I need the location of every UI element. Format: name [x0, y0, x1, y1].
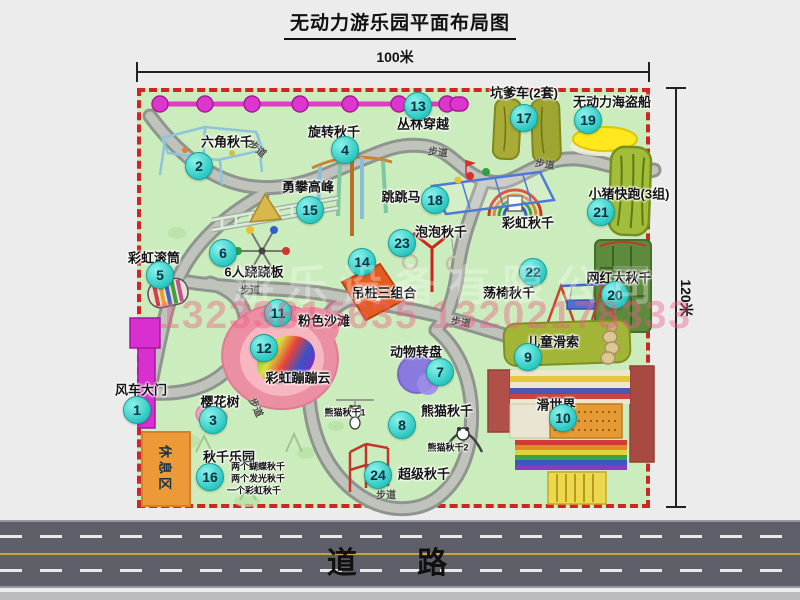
- badge-9: 9: [514, 343, 542, 371]
- park-plan-screenshot: 无动力游乐园平面布局图 100米 120米: [0, 0, 800, 600]
- badge-6: 6: [209, 239, 237, 267]
- badge-18: 18: [421, 186, 449, 214]
- height-dimension-tick-top: [666, 87, 686, 89]
- label-seesaw: 6人跷跷板: [224, 262, 283, 281]
- label-animal-turntable: 动物转盘: [390, 342, 442, 361]
- label-hanging-piles: 吊桩三组合: [351, 283, 416, 302]
- badge-16: 16: [196, 463, 224, 491]
- label-panda-swing-2: 熊猫秋千2: [427, 441, 468, 454]
- badge-15: 15: [296, 196, 324, 224]
- badge-11: 11: [264, 299, 292, 327]
- height-dimension-tick-bottom: [666, 506, 686, 508]
- badge-1: 1: [123, 396, 151, 424]
- road-label: 道 路: [0, 538, 800, 582]
- label-rainbow-cloud: 彩虹蹦蹦云: [265, 368, 330, 387]
- rest-area-label: 休息区: [157, 445, 176, 493]
- label-chair-swing: 荡椅秋千: [483, 283, 535, 302]
- label-pink-beach: 粉色沙滩: [298, 311, 350, 330]
- footpath-label: 步道: [427, 142, 448, 159]
- badge-7: 7: [426, 358, 454, 386]
- badge-4: 4: [331, 136, 359, 164]
- badge-21: 21: [587, 198, 615, 226]
- label-climbing-peak: 勇攀高峰: [282, 177, 334, 196]
- badge-5: 5: [146, 261, 174, 289]
- width-dimension-tick-right: [648, 62, 650, 82]
- width-dimension-tick-left: [136, 62, 138, 82]
- badge-19: 19: [574, 106, 602, 134]
- width-dimension-line: [137, 71, 650, 73]
- badge-17: 17: [510, 104, 538, 132]
- label-panda-swing-1: 熊猫秋千1: [324, 406, 365, 419]
- badge-23: 23: [388, 229, 416, 257]
- swing-park-note-3: 一个彩虹秋千: [227, 484, 281, 497]
- badge-22: 22: [519, 258, 547, 286]
- height-dimension-label: 120米: [676, 279, 696, 316]
- badge-24: 24: [364, 461, 392, 489]
- page-title-wrap: 无动力游乐园平面布局图: [0, 8, 800, 40]
- label-jumping-horse: 跳跳马: [381, 187, 420, 206]
- bottom-edge-strip: [0, 592, 800, 600]
- badge-2: 2: [185, 152, 213, 180]
- footpath-label: 步道: [240, 282, 260, 297]
- road: 道 路: [0, 520, 800, 588]
- footpath-label: 步道: [376, 487, 396, 502]
- badge-20: 20: [601, 281, 629, 309]
- badge-10: 10: [549, 404, 577, 432]
- page-title: 无动力游乐园平面布局图: [284, 8, 516, 40]
- label-rainbow-arch-swing: 彩虹秋千: [502, 213, 554, 232]
- label-super-swing: 超级秋千: [398, 464, 450, 483]
- footpath-label: 步道: [534, 154, 556, 172]
- badge-13: 13: [404, 92, 432, 120]
- width-dimension-label: 100米: [376, 47, 413, 67]
- footpath-label: 步道: [450, 312, 472, 330]
- badge-14: 14: [348, 248, 376, 276]
- label-panda-swing: 熊猫秋千: [421, 401, 473, 420]
- badge-8: 8: [388, 411, 416, 439]
- badge-12: 12: [250, 334, 278, 362]
- badge-3: 3: [199, 406, 227, 434]
- label-bubble-swing: 泡泡秋千: [415, 222, 467, 241]
- label-pit-car: 坑爹车(2套): [490, 83, 558, 102]
